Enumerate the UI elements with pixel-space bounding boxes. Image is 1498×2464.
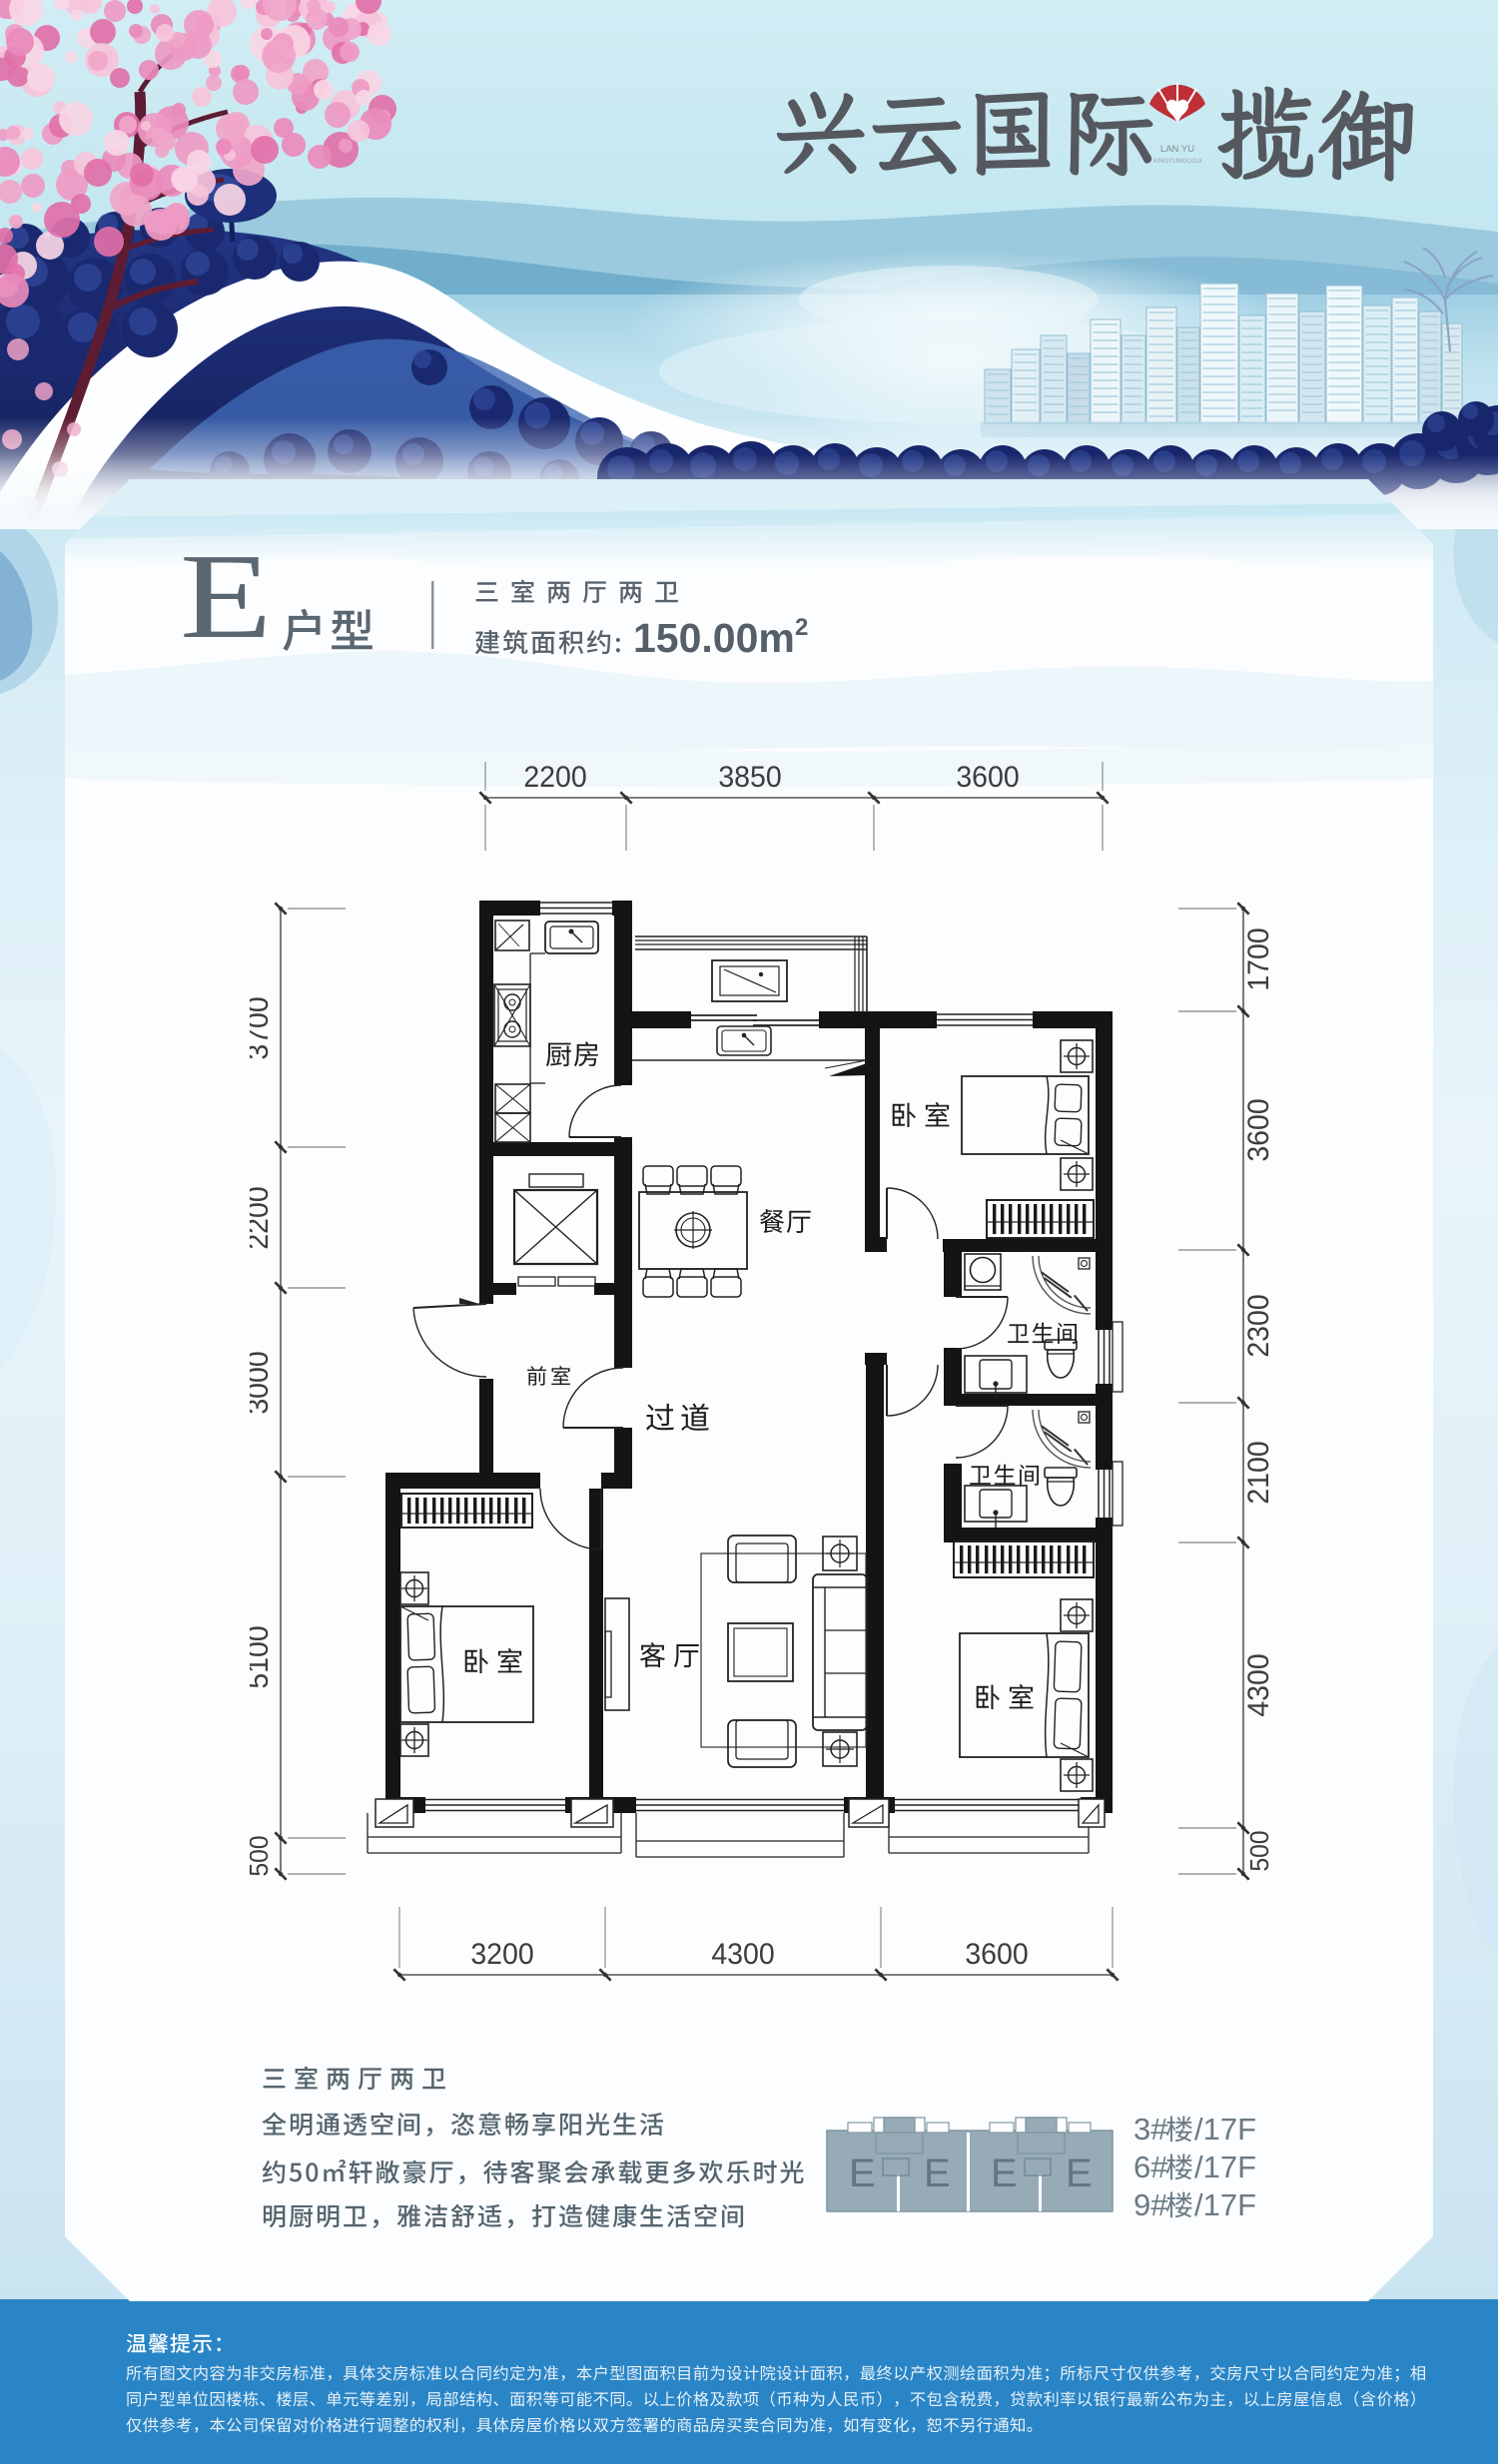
svg-text:3000: 3000 — [250, 1351, 275, 1414]
svg-text:2200: 2200 — [523, 761, 586, 794]
svg-text:3600: 3600 — [956, 761, 1019, 794]
svg-text:3850: 3850 — [718, 761, 781, 794]
svg-text:500: 500 — [250, 1835, 274, 1876]
svg-text:3200: 3200 — [470, 1938, 533, 1971]
svg-text:500: 500 — [1245, 1830, 1274, 1871]
svg-text:2: 2 — [795, 614, 808, 641]
svg-text:6#: 6# — [1133, 2150, 1168, 2184]
svg-text:2300: 2300 — [1242, 1294, 1275, 1357]
svg-text:5100: 5100 — [250, 1625, 275, 1688]
svg-text:XINGYUNGUOJI: XINGYUNGUOJI — [1152, 158, 1202, 165]
svg-text:150.00m: 150.00m — [633, 615, 795, 661]
svg-text:4300: 4300 — [711, 1938, 774, 1971]
svg-text:3700: 3700 — [250, 996, 275, 1059]
svg-text:E: E — [849, 2152, 876, 2195]
svg-text:3#: 3# — [1133, 2112, 1168, 2147]
svg-text:/17F: /17F — [1194, 2112, 1256, 2147]
svg-text:3600: 3600 — [1242, 1098, 1275, 1161]
svg-text:4300: 4300 — [1242, 1653, 1275, 1716]
svg-text:1700: 1700 — [1242, 927, 1275, 990]
svg-text:E: E — [991, 2152, 1018, 2195]
svg-text:LAN YU: LAN YU — [1160, 144, 1194, 155]
svg-text:/17F: /17F — [1194, 2187, 1256, 2222]
svg-text:2100: 2100 — [1242, 1441, 1275, 1504]
svg-text:9#: 9# — [1133, 2187, 1168, 2222]
svg-text:E: E — [924, 2152, 951, 2195]
svg-text:3600: 3600 — [965, 1938, 1028, 1971]
svg-text:/17F: /17F — [1194, 2150, 1256, 2184]
svg-text:E: E — [1066, 2152, 1093, 2195]
svg-text:2200: 2200 — [250, 1186, 275, 1249]
